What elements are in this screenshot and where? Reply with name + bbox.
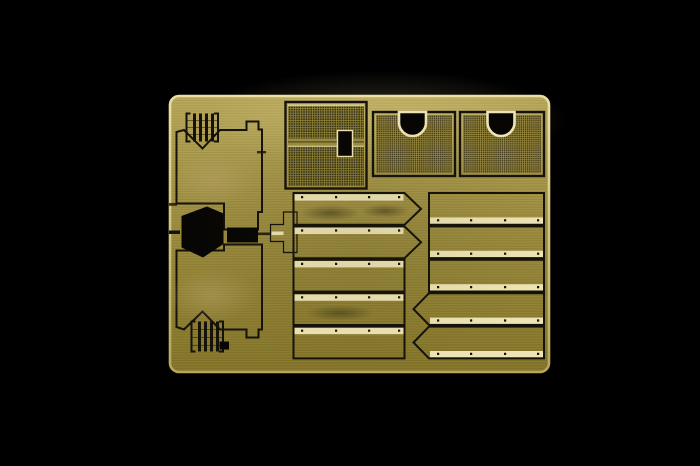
etched-sheet-photo: [0, 0, 700, 466]
photo-background: [0, 0, 700, 466]
brass-sheet: [166, 70, 570, 372]
photo-vignette: [170, 96, 549, 372]
